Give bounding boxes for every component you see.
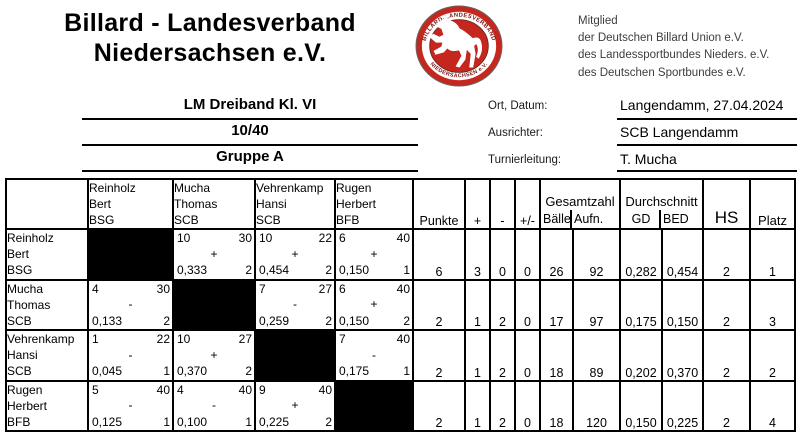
horse-seal-icon: BILLARD-LANDESVERBAND NIEDERSACHSEN e.V. (409, 3, 509, 89)
gd-cell: 0,150 (620, 381, 662, 432)
table-row: Mucha Thomas SCB 430 - 0,1332 727 - 0,25… (6, 280, 795, 331)
baelle-cell: 26 (540, 229, 573, 280)
match-cell: 740 - 0,1751 (335, 330, 413, 381)
bed-cell: 0,454 (662, 229, 703, 280)
row-header-player-2: Mucha Thomas SCB (6, 280, 88, 331)
platz-cell: 4 (750, 381, 795, 432)
turnierleitung-value: T. Mucha (620, 151, 677, 167)
bed-cell: 0,370 (662, 330, 703, 381)
ort-datum-value: Langendamm, 27.04.2024 (620, 97, 783, 113)
results-table: Reinholz Bert BSG Mucha Thomas SCB Vehre… (5, 178, 796, 432)
ort-datum-label: Ort, Datum: (488, 100, 547, 112)
gd-cell: 0,175 (620, 280, 662, 331)
divider (82, 118, 418, 120)
aufn-cell: 89 (573, 330, 620, 381)
self-cell (173, 280, 255, 331)
col-header-aufn: Aufn. (572, 210, 603, 228)
col-header-player-1: Reinholz Bert BSG (88, 179, 173, 229)
match-cell: 640 + 0,1502 (335, 280, 413, 331)
match-cell: 1022 + 0,4542 (255, 229, 335, 280)
col-header-durchschnitt: Durchschnitt GD BED (620, 179, 703, 229)
col-header-bed: BED (661, 210, 689, 228)
match-cell: 640 + 0,1501 (335, 229, 413, 280)
divider (617, 170, 797, 172)
match-cell: 430 - 0,1332 (88, 280, 173, 331)
divider (617, 144, 797, 146)
hs-cell: 2 (703, 330, 750, 381)
row-header-player-1: Reinholz Bert BSG (6, 229, 88, 280)
col-header-player-3: Vehrenkamp Hansi SCB (255, 179, 335, 229)
membership-line: des Deutschen Sportbundes e.V. (578, 65, 769, 82)
match-cell: 727 - 0,2592 (255, 280, 335, 331)
match-cell: 1030 + 0,3332 (173, 229, 255, 280)
membership-line: des Landessportbundes Nieders. e.V. (578, 47, 769, 64)
match-cell: 940 + 0,2252 (255, 381, 335, 432)
table-row: Vehrenkamp Hansi SCB 122 - 0,0451 1027 +… (6, 330, 795, 381)
minus-cell: 2 (490, 381, 515, 432)
match-cell: 1027 + 0,3702 (173, 330, 255, 381)
col-header-hs: HS (703, 179, 750, 229)
event-group: Gruppe A (80, 148, 420, 165)
hs-cell: 2 (703, 229, 750, 280)
bed-cell: 0,225 (662, 381, 703, 432)
baelle-cell: 18 (540, 330, 573, 381)
membership-line: Mitglied (578, 13, 769, 30)
self-cell (255, 330, 335, 381)
gd-cell: 0,282 (620, 229, 662, 280)
plusminus-cell: 0 (515, 229, 540, 280)
col-header-player-4: Rugen Herbert BFB (335, 179, 413, 229)
col-header-gd: GD (621, 210, 661, 228)
hs-cell: 2 (703, 280, 750, 331)
minus-cell: 2 (490, 330, 515, 381)
col-header-gesamtzahl: Gesamtzahl Bälle Aufn. (540, 179, 620, 229)
self-cell (88, 229, 173, 280)
corner-cell (6, 179, 88, 229)
divider (82, 144, 418, 146)
minus-cell: 2 (490, 280, 515, 331)
ausrichter-value: SCB Langendamm (620, 124, 738, 140)
col-header-baelle: Bälle (541, 210, 572, 228)
punkte-cell: 6 (413, 229, 465, 280)
self-cell (335, 381, 413, 432)
table-row: Rugen Herbert BFB 540 - 0,1251 440 - 0,1… (6, 381, 795, 432)
minus-cell: 0 (490, 229, 515, 280)
punkte-cell: 2 (413, 330, 465, 381)
punkte-cell: 2 (413, 381, 465, 432)
col-header-player-2: Mucha Thomas SCB (173, 179, 255, 229)
turnierleitung-label: Turnierleitung: (488, 154, 561, 166)
gd-cell: 0,202 (620, 330, 662, 381)
association-logo: BILLARD-LANDESVERBAND NIEDERSACHSEN e.V. (409, 3, 509, 89)
page-title: Billard - Landesverband Niedersachsen e.… (0, 8, 420, 68)
punkte-cell: 2 (413, 280, 465, 331)
match-cell: 122 - 0,0451 (88, 330, 173, 381)
match-cell: 440 - 0,1001 (173, 381, 255, 432)
plusminus-cell: 0 (515, 381, 540, 432)
platz-cell: 2 (750, 330, 795, 381)
page-title-line2: Niedersachsen e.V. (0, 38, 420, 68)
plus-cell: 1 (465, 330, 490, 381)
ausrichter-label: Ausrichter: (488, 127, 543, 139)
plusminus-cell: 0 (515, 330, 540, 381)
aufn-cell: 120 (573, 381, 620, 432)
divider (617, 118, 797, 120)
page-title-line1: Billard - Landesverband (0, 8, 420, 38)
membership-block: Mitglied der Deutschen Billard Union e.V… (578, 13, 769, 82)
col-header-plus: + (465, 179, 490, 229)
aufn-cell: 92 (573, 229, 620, 280)
col-header-platz: Platz (750, 179, 795, 229)
plus-cell: 1 (465, 280, 490, 331)
table-row: Reinholz Bert BSG 1030 + 0,3332 1022 + 0… (6, 229, 795, 280)
aufn-cell: 97 (573, 280, 620, 331)
divider (82, 170, 418, 172)
baelle-cell: 18 (540, 381, 573, 432)
hs-cell: 2 (703, 381, 750, 432)
event-title: LM Dreiband Kl. VI (80, 96, 420, 113)
row-header-player-4: Rugen Herbert BFB (6, 381, 88, 432)
match-cell: 540 - 0,1251 (88, 381, 173, 432)
bed-cell: 0,150 (662, 280, 703, 331)
baelle-cell: 17 (540, 280, 573, 331)
platz-cell: 3 (750, 280, 795, 331)
col-header-minus: - (490, 179, 515, 229)
row-header-player-3: Vehrenkamp Hansi SCB (6, 330, 88, 381)
plusminus-cell: 0 (515, 280, 540, 331)
plus-cell: 1 (465, 381, 490, 432)
platz-cell: 1 (750, 229, 795, 280)
plus-cell: 3 (465, 229, 490, 280)
col-header-plusminus: +/- (515, 179, 540, 229)
membership-line: der Deutschen Billard Union e.V. (578, 30, 769, 47)
col-header-punkte: Punkte (413, 179, 465, 229)
event-mode: 10/40 (80, 122, 420, 139)
